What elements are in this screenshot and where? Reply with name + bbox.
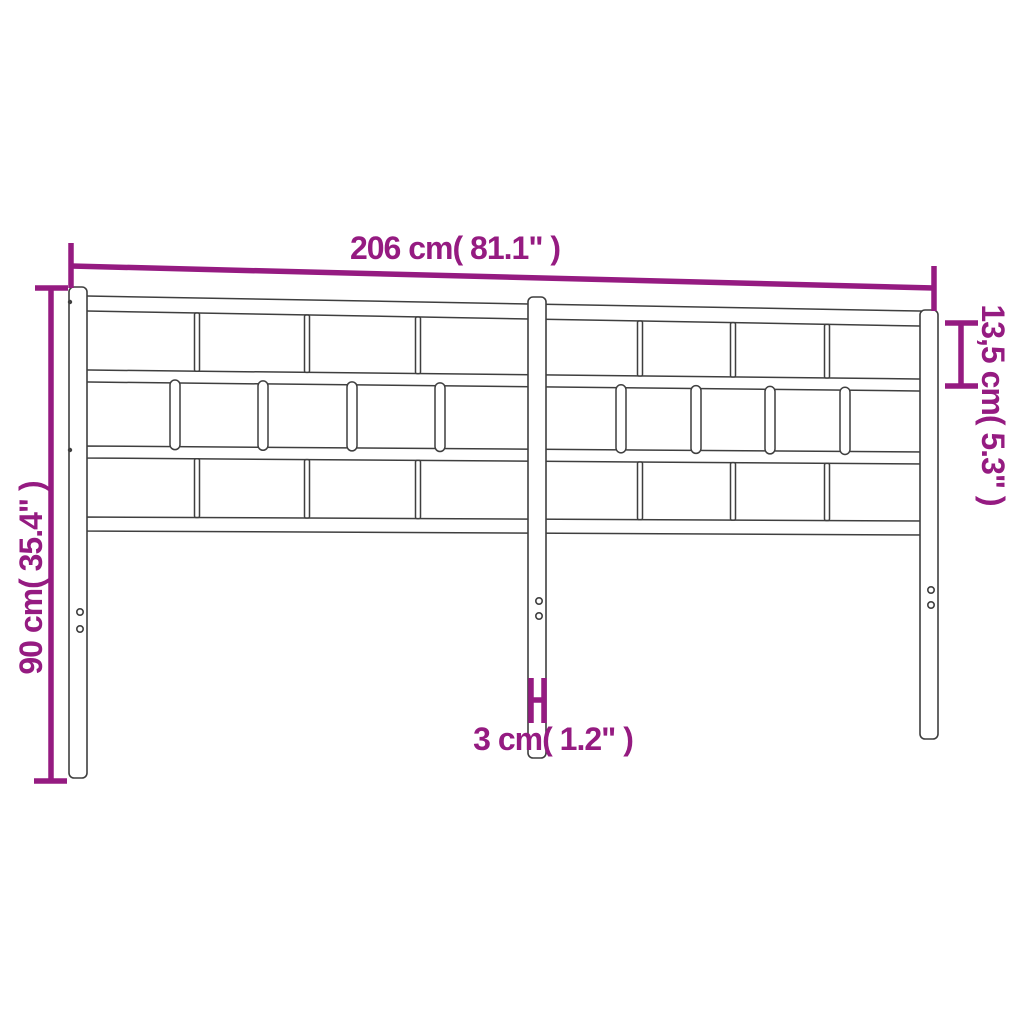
slat (347, 382, 357, 451)
width-dimension-label: 206 cm( 81.1" ) (350, 230, 560, 266)
slat (731, 323, 736, 377)
height-dimension: 90 cm( 35.4" ) (13, 288, 68, 781)
headboard-dimension-diagram: 206 cm( 81.1" ) 90 cm( 35.4" ) 13,5 cm( … (0, 0, 1024, 1024)
horizontal-rails (75, 296, 932, 535)
rail (75, 517, 931, 535)
left-post (69, 287, 87, 778)
slat (825, 324, 830, 378)
post-width-dimension: 3 cm( 1.2" ) (473, 678, 633, 757)
diagram-canvas: 206 cm( 81.1" ) 90 cm( 35.4" ) 13,5 cm( … (0, 0, 1024, 1024)
slat (258, 381, 268, 450)
slat (691, 386, 701, 454)
slat (616, 385, 626, 453)
top-section-dimension: 13,5 cm( 5.3" ) (945, 304, 1011, 506)
hole (928, 587, 934, 593)
rail (76, 446, 931, 464)
post-width-dimension-label: 3 cm( 1.2" ) (473, 721, 633, 757)
slat (195, 459, 200, 518)
slat (416, 317, 421, 374)
hole (77, 609, 83, 615)
rail (75, 296, 932, 326)
hole (536, 613, 542, 619)
top-section-dimension-label: 13,5 cm( 5.3" ) (975, 304, 1011, 506)
slat (765, 386, 775, 454)
rail (76, 370, 931, 391)
right-post (920, 310, 938, 739)
slat (825, 463, 830, 520)
bolt-dot (68, 300, 72, 304)
slat (195, 313, 200, 371)
slat (638, 321, 643, 376)
slat (435, 383, 445, 452)
width-dimension-line (71, 266, 934, 288)
bolt-dot (68, 448, 72, 452)
slat (840, 387, 850, 454)
slat (416, 460, 421, 518)
hole (536, 598, 542, 604)
hole (77, 626, 83, 632)
vertical-slats (170, 313, 850, 521)
slat (731, 463, 736, 520)
slat (170, 380, 180, 450)
height-dimension-label: 90 cm( 35.4" ) (13, 481, 49, 675)
slat (638, 462, 643, 520)
slat (305, 460, 310, 518)
headboard-drawing (68, 287, 938, 778)
mounting-holes (77, 587, 934, 632)
slat (305, 315, 310, 372)
hole (928, 602, 934, 608)
